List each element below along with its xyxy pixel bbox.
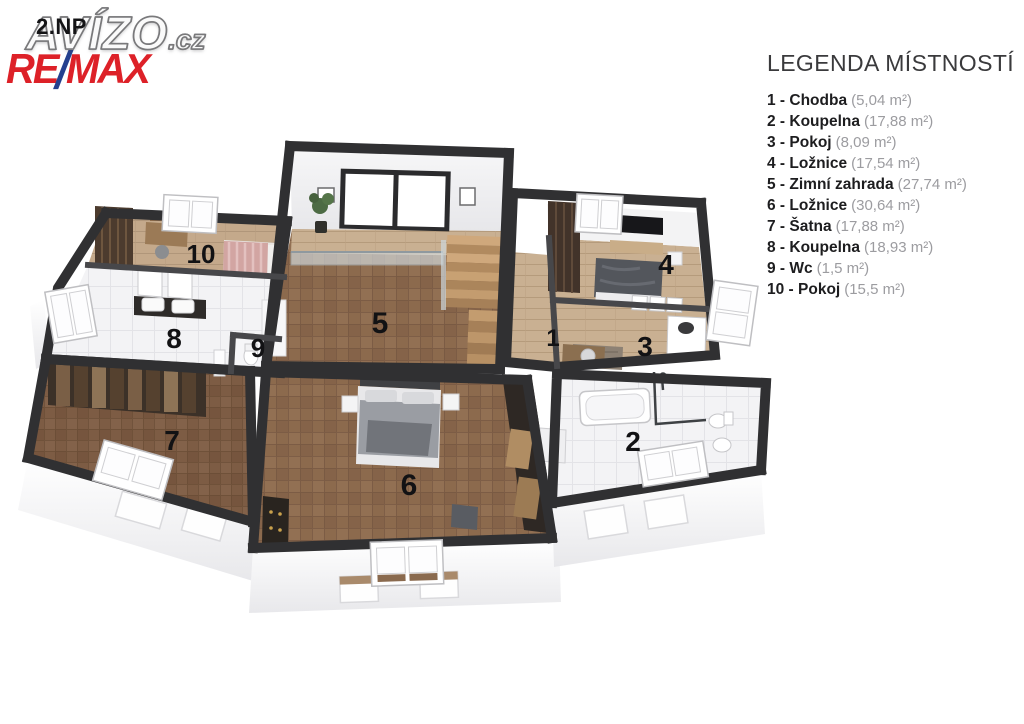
room-label-10: 10 [187,239,216,269]
legend-item: 3 - Pokoj(8,09 m²) [767,132,1017,153]
legend-item: 10 - Pokoj(15,5 m²) [767,279,1017,300]
legend-item: 9 - Wc(1,5 m²) [767,258,1017,279]
nightstand [443,394,459,410]
mirror [138,268,162,297]
legend-item: 2 - Koupelna(17,88 m²) [767,111,1017,132]
room-label-8: 8 [166,323,182,354]
room-label-1: 1 [546,325,559,352]
picture-frame [460,188,475,205]
nightstand [342,396,358,412]
legend-item: 1 - Chodba(5,04 m²) [767,90,1017,111]
room-label-9: 9 [251,333,265,363]
chair [155,245,169,259]
bench [451,504,478,530]
legend-item: 7 - Šatna(17,88 m²) [767,216,1017,237]
screenshot-root: 1 2 3 4 5 6 7 8 9 10 RE/MAX AVÍZO.cz 2.N… [0,0,1024,724]
bidet [713,438,731,452]
room-label-4: 4 [658,249,674,280]
floor-level-label: 2.NP [36,14,87,40]
legend-item: 5 - Zimní zahrada(27,74 m²) [767,174,1017,195]
room-label-6: 6 [401,469,418,502]
legend-item: 8 - Koupelna(18,93 m²) [767,237,1017,258]
watermark-suffix: .cz [168,24,205,55]
mirror [168,270,192,299]
room-legend: LEGENDA MÍSTNOSTÍ 1 - Chodba(5,04 m²) 2 … [767,50,1017,300]
room-label-3: 3 [637,331,653,362]
legend-item: 6 - Ložnice(30,64 m²) [767,195,1017,216]
bathtub [579,388,651,426]
tv [618,215,663,235]
dresser [262,496,289,547]
legend-item: 4 - Ložnice(17,54 m²) [767,153,1017,174]
room-label-5: 5 [372,307,389,340]
legend-title: LEGENDA MÍSTNOSTÍ [767,50,1017,77]
sliding-door [339,169,451,232]
bed-room6 [356,376,441,468]
room-label-2: 2 [625,426,641,457]
sink-cabinet [667,316,706,357]
room-label-7: 7 [164,425,180,456]
